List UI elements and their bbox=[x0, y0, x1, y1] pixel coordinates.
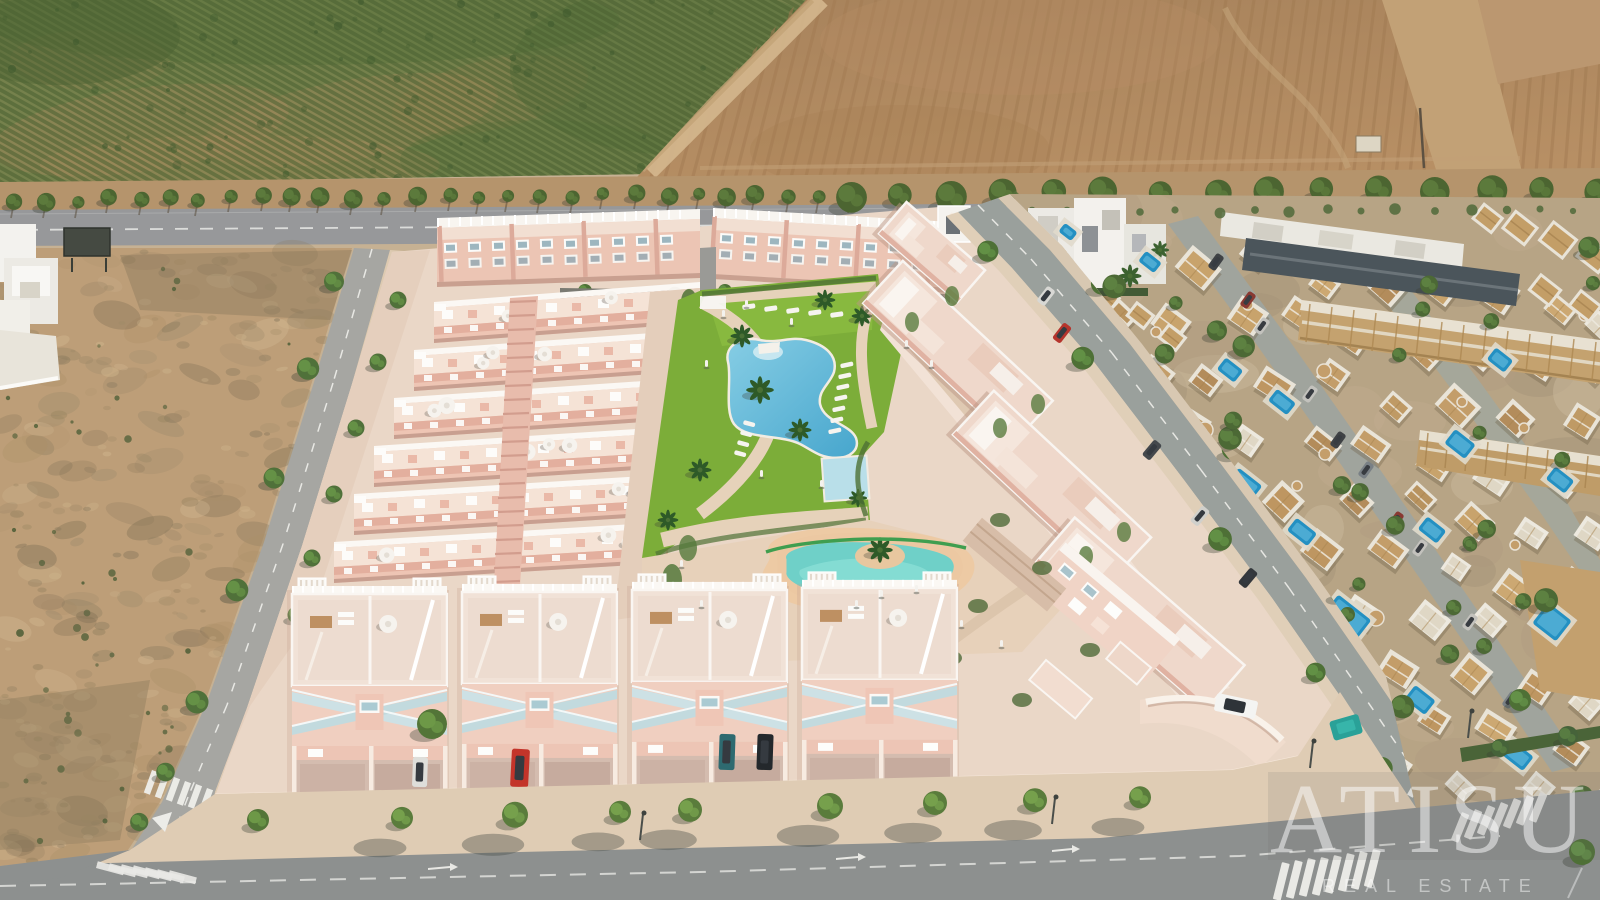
svg-text:REAL ESTATE: REAL ESTATE bbox=[1322, 876, 1540, 896]
svg-text:ATISU: ATISU bbox=[1270, 763, 1593, 874]
